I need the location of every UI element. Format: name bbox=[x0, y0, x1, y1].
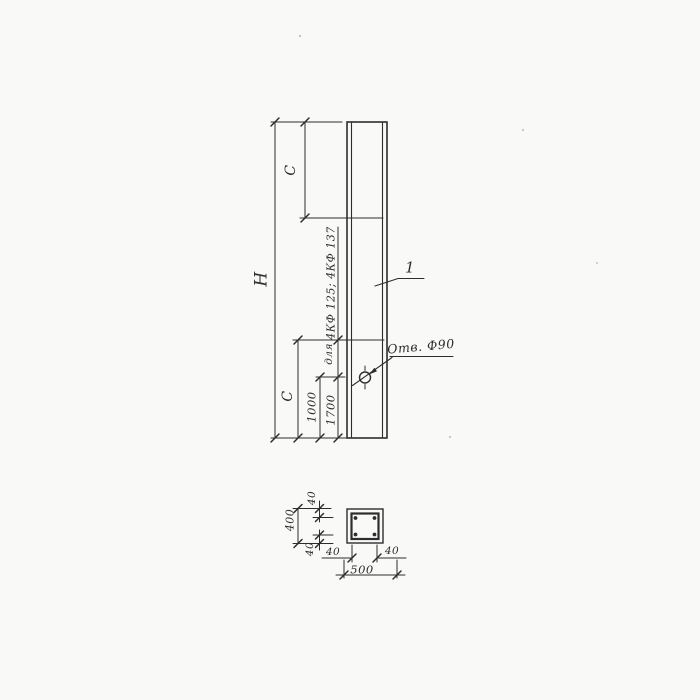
dim-label-C-top: С bbox=[284, 164, 298, 175]
sec-label-500: 500 bbox=[350, 564, 373, 576]
rebar-dot bbox=[354, 533, 358, 537]
item-number-label: 1 bbox=[405, 261, 415, 276]
rebar-dot bbox=[373, 533, 377, 537]
scan-speck bbox=[299, 35, 301, 37]
rebar-dot bbox=[354, 516, 358, 520]
scan-speck bbox=[449, 436, 451, 438]
dim-label-C-bottom: С bbox=[281, 390, 295, 401]
sec-label-40-left: 40 bbox=[326, 547, 340, 558]
sec-label-40-right: 40 bbox=[385, 546, 399, 557]
drawing-linework bbox=[0, 0, 700, 700]
dim-label-1000: 1000 bbox=[306, 391, 318, 422]
section-view bbox=[347, 509, 383, 543]
scan-specks bbox=[299, 35, 598, 438]
sec-label-40-bottom: 40 bbox=[305, 542, 316, 556]
note-word-for: для bbox=[324, 343, 335, 365]
sec-label-400: 400 bbox=[285, 509, 296, 532]
dim-label-1700: 1700 bbox=[325, 394, 337, 425]
sec-label-40-top: 40 bbox=[307, 491, 318, 505]
scan-speck bbox=[596, 262, 598, 264]
note-column-types: 4КФ 125; 4КФ 137 bbox=[326, 226, 337, 339]
column-outline bbox=[347, 122, 387, 438]
scan-speck bbox=[522, 129, 524, 131]
rebar-dot bbox=[373, 516, 377, 520]
dim-label-H: Н bbox=[254, 271, 271, 286]
drawing-sheet: Н С С 1000 1700 для 4КФ 125; 4КФ 137 Отв… bbox=[0, 0, 700, 700]
